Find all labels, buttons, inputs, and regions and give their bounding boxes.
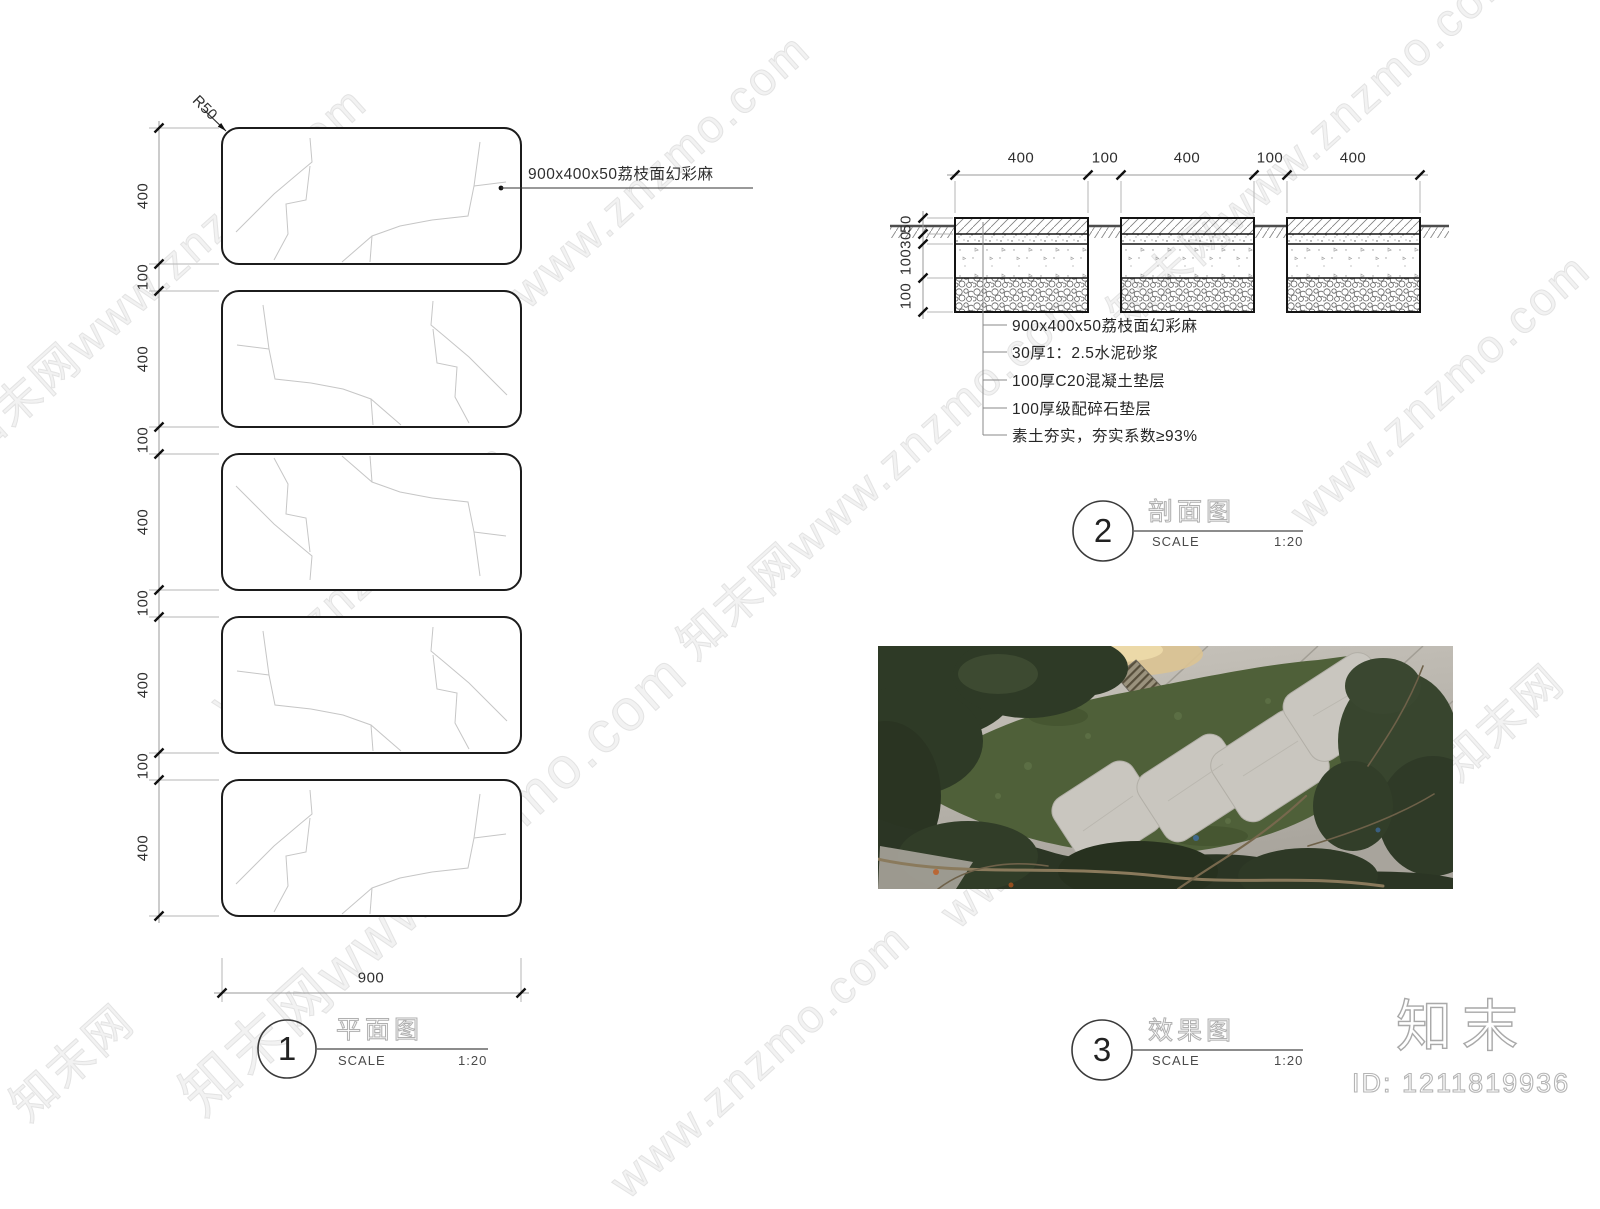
scale-value: 1:20 xyxy=(1274,1053,1303,1068)
section-dim-label: 400 xyxy=(1008,150,1035,167)
section-note: 30厚1：2.5水泥砂浆 xyxy=(1012,341,1158,363)
plan-material-label: 900x400x50荔枝面幻彩麻 xyxy=(528,162,713,184)
section-side-dim: 100 xyxy=(898,283,915,310)
plan-dim-label: 400 xyxy=(135,672,152,699)
plan-dim-label: 100 xyxy=(135,264,152,291)
section-side-dim: 30 xyxy=(898,231,915,249)
cad-linework xyxy=(0,0,1600,1131)
section-view xyxy=(890,171,1449,436)
figure-title: 剖面图 xyxy=(1148,492,1235,528)
material-leader xyxy=(499,186,753,191)
section-note: 100厚级配碎石垫层 xyxy=(1012,397,1151,419)
plan-dim-label: 100 xyxy=(135,590,152,617)
scale-label: SCALE xyxy=(1152,534,1200,549)
section-dim-label: 100 xyxy=(1257,150,1284,167)
section-note: 素土夯实，夯实系数≥93% xyxy=(1012,424,1198,446)
figure-title: 平面图 xyxy=(336,1010,423,1046)
plan-dim-label: 400 xyxy=(135,183,152,210)
result-photo xyxy=(831,629,1488,904)
plan-dim-label: 400 xyxy=(135,509,152,536)
scale-label: SCALE xyxy=(338,1053,386,1068)
figure-number: 1 xyxy=(278,1030,296,1068)
sheet-id: ID: 1211819936 xyxy=(1352,1068,1570,1099)
plan-dim-label: 100 xyxy=(135,753,152,780)
plan-dim-label: 100 xyxy=(135,427,152,454)
section-dim-label: 100 xyxy=(1092,150,1119,167)
section-dim-label: 400 xyxy=(1174,150,1201,167)
scale-label: SCALE xyxy=(1152,1053,1200,1068)
plan-dim-label: 400 xyxy=(135,346,152,373)
drawing-sheet: { "watermark": { "brand": "知末网", "url": … xyxy=(0,0,1600,1131)
plan-view xyxy=(149,109,753,1002)
section-dim-label: 400 xyxy=(1340,150,1367,167)
znzmo-logo: 知末 xyxy=(1396,982,1528,1063)
scale-value: 1:20 xyxy=(1274,534,1303,549)
section-side-dim: 100 xyxy=(898,249,915,276)
section-note: 100厚C20混凝土垫层 xyxy=(1012,369,1165,391)
plan-width-dim: 900 xyxy=(358,970,385,987)
plan-dim-label: 400 xyxy=(135,835,152,862)
figure-number: 3 xyxy=(1093,1031,1111,1069)
figure-title: 效果图 xyxy=(1148,1011,1235,1047)
section-note: 900x400x50荔枝面幻彩麻 xyxy=(1012,314,1197,336)
figure-number: 2 xyxy=(1094,512,1112,550)
scale-value: 1:20 xyxy=(458,1053,487,1068)
